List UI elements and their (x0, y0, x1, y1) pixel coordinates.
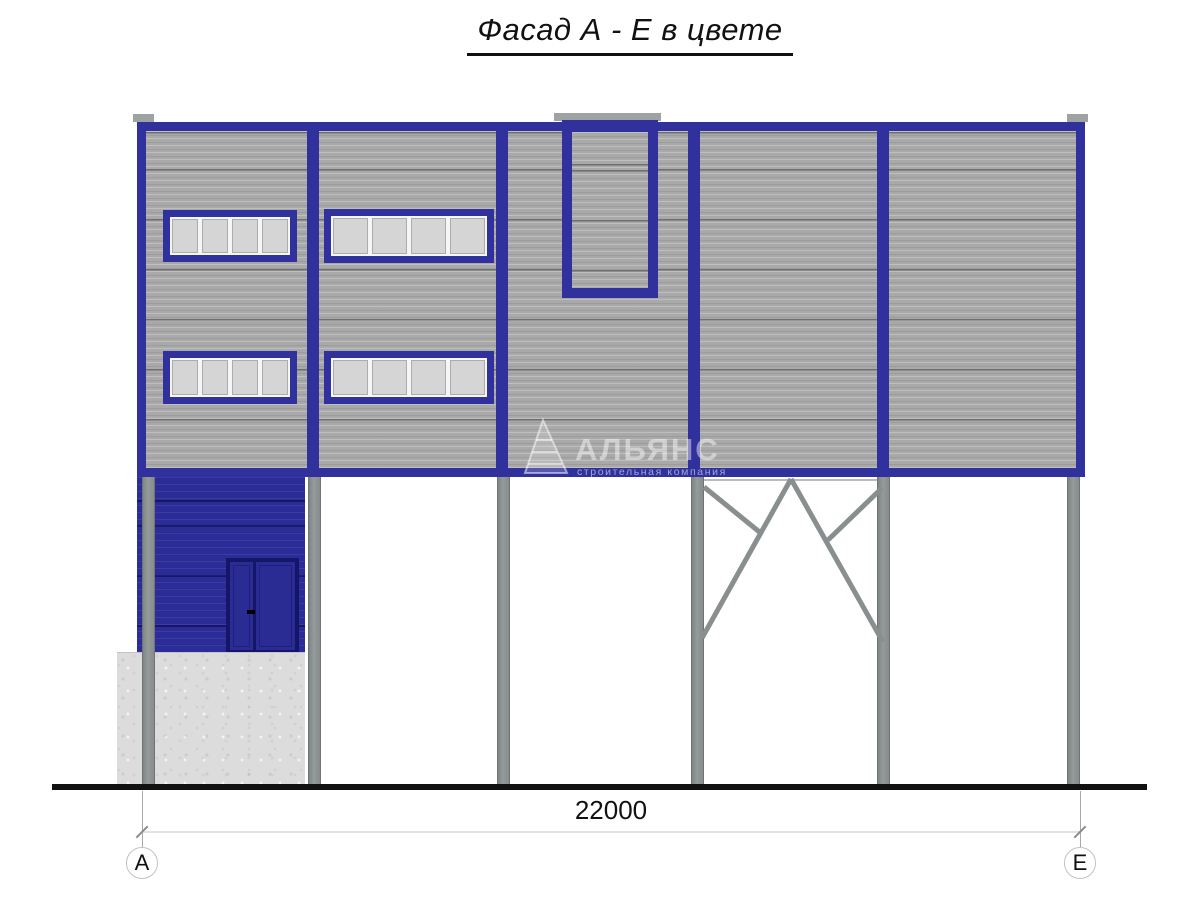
parapet-notch-panel (572, 132, 648, 288)
window-pane (411, 218, 446, 254)
steel-column-2 (308, 477, 321, 786)
facade-mullion-3 (688, 126, 700, 472)
facade-mullion-1 (307, 126, 319, 472)
roof-brace-bay (690, 475, 892, 655)
window-pane (372, 360, 407, 395)
window-pane (262, 360, 288, 395)
door-leaf-left (230, 562, 253, 650)
window-upper-left (163, 210, 297, 262)
window-lower-left (163, 351, 297, 404)
window-pane (333, 360, 368, 395)
door-leaf-right (256, 562, 295, 650)
window-glass (170, 358, 290, 397)
dimension-extension-line-right (1080, 791, 1081, 847)
drawing-title: Фасад А - Е в цвете (60, 12, 1200, 56)
drawing-title-text: Фасад А - Е в цвете (467, 12, 792, 56)
roof-cap-right (1067, 114, 1088, 122)
dimension-line (142, 831, 1080, 833)
window-pane (333, 218, 368, 254)
window-pane (450, 360, 485, 395)
window-pane (232, 219, 258, 253)
steel-column-1 (142, 477, 155, 786)
parapet-notch (562, 120, 658, 298)
window-pane (172, 360, 198, 395)
window-upper-right (324, 209, 494, 263)
window-pane (232, 360, 258, 395)
window-glass (331, 216, 487, 256)
window-lower-right (324, 351, 494, 404)
entrance-door (226, 558, 299, 652)
dimension-extension-line-left (142, 791, 143, 847)
grid-bubble-a: А (126, 847, 158, 879)
steel-column-3 (497, 477, 510, 786)
facade-mullion-4 (877, 126, 889, 472)
steel-column-6 (1067, 477, 1080, 786)
window-glass (331, 358, 487, 397)
roof-cap-left (133, 114, 154, 122)
grid-bubble-e: Е (1064, 847, 1096, 879)
window-pane (372, 218, 407, 254)
page: { "title": "Фасад А - Е в цвете", "water… (0, 0, 1200, 900)
ground-line (52, 784, 1147, 790)
facade-mullion-2 (496, 126, 508, 472)
window-glass (170, 217, 290, 255)
window-pane (450, 218, 485, 254)
window-pane (202, 219, 228, 253)
window-pane (411, 360, 446, 395)
dimension-label: 22000 (511, 795, 711, 826)
window-pane (202, 360, 228, 395)
window-pane (172, 219, 198, 253)
door-handle (247, 610, 255, 614)
window-pane (262, 219, 288, 253)
